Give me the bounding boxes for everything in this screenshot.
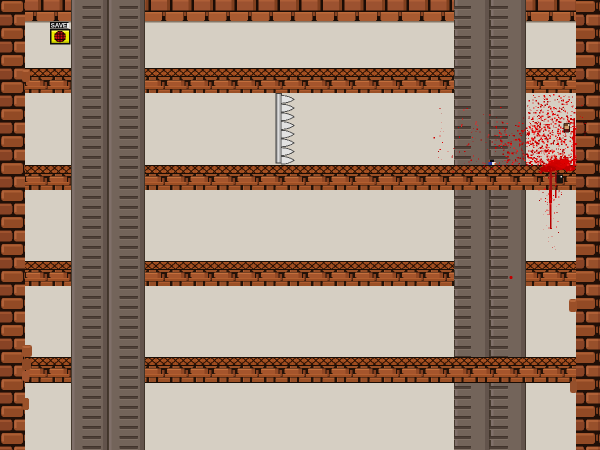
svg-text:SAVE: SAVE	[51, 24, 67, 30]
